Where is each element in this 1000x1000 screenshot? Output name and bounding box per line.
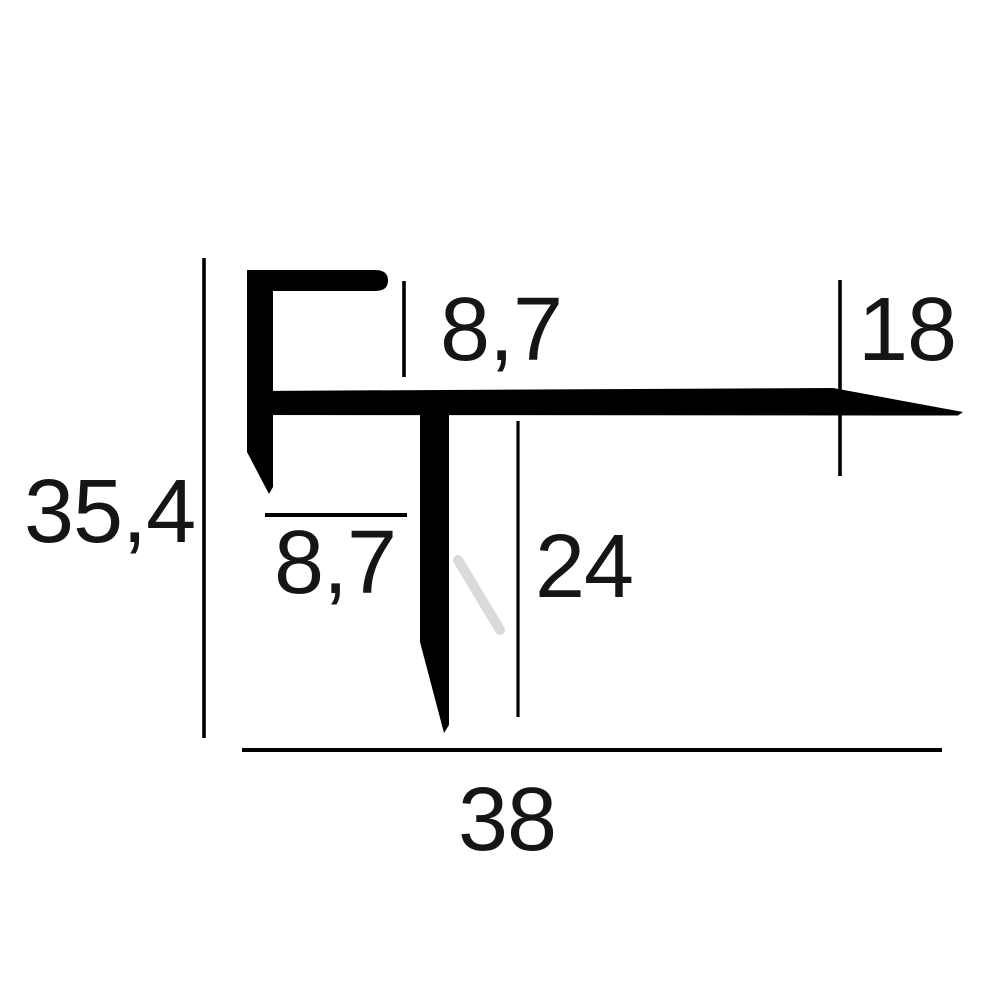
profile-stem <box>420 391 449 733</box>
profile-horizontal-web <box>247 388 963 416</box>
dim-label-left-return-width: 8,7 <box>274 518 396 608</box>
watermark-stroke <box>458 560 500 630</box>
dim-label-right-end-height: 18 <box>858 285 956 375</box>
dim-label-overall-height: 35,4 <box>24 467 195 557</box>
profile-left-leg <box>247 270 273 494</box>
dim-label-top-return-depth: 8,7 <box>440 285 562 375</box>
drawing-canvas: 35,4 8,7 18 8,7 24 38 <box>0 0 1000 1000</box>
dim-label-overall-width: 38 <box>458 775 556 865</box>
dim-label-stem-height: 24 <box>535 522 633 612</box>
